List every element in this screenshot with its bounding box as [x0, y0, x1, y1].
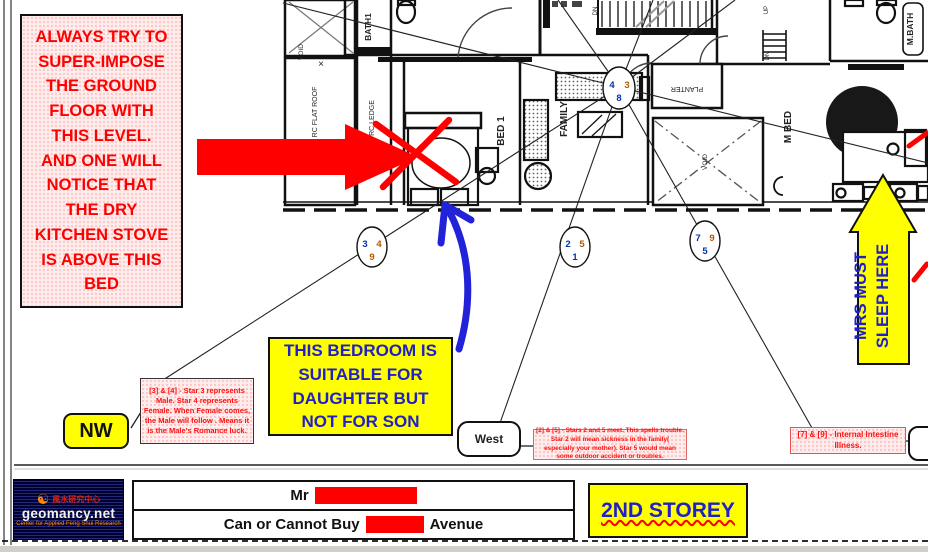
window-bottom-strip: [0, 546, 928, 552]
annotation-star-7-9-text: [7] & [9] - Internal Intestine Illness.: [793, 430, 903, 451]
star-num: 3: [624, 80, 629, 91]
client-box: Mr Can or Cannot Buy Avenue: [132, 480, 575, 540]
room-label-family: FAMILY: [559, 101, 570, 137]
stairs-dn-label-2: DN: [765, 52, 771, 61]
mrs-sleep-arrow: MRS MUST SLEEP HERE: [850, 175, 916, 364]
room-label-bath1: BATH1: [363, 13, 373, 41]
page-margin-lines: [4, 0, 11, 545]
star-circle-center: 4 3 8: [603, 67, 635, 109]
annotation-star-2-5-text: [2] & [5] - Stars 2 and 5 meet. This spe…: [535, 427, 685, 463]
star-num: 3: [362, 239, 367, 250]
room-label-bed1: BED 1: [496, 116, 507, 146]
storey-box: 2ND STOREY: [588, 483, 748, 538]
logo-tagline: Center for Applied Feng Shui Research: [16, 521, 120, 527]
star-circle-se: 7 9 5: [690, 221, 720, 261]
stairs-up-label: UP: [764, 6, 770, 14]
client-address-suffix: Avenue: [430, 516, 484, 533]
compass-west-label: West: [457, 421, 521, 457]
star-num: 9: [369, 252, 374, 263]
yin-yang-icon: ☯: [37, 492, 50, 506]
star-circle-nw: 3 4 9: [357, 227, 387, 267]
logo-brand-text: geomancy.net: [22, 506, 115, 521]
annotation-star-3-4: [3] & [4] - Star 3 represents Male. Star…: [140, 378, 254, 444]
room-label-rc-flat-roof: RC FLAT ROOF: [312, 87, 319, 138]
note-text: ALWAYS TRY TO SUPER-IMPOSE THE GROUND FL…: [32, 25, 171, 297]
void-x-mark: ×: [318, 59, 324, 70]
logo-chinese-text: 風水研究中心: [52, 494, 100, 505]
star-num: 5: [702, 246, 708, 257]
compass-nw-label: NW: [63, 413, 129, 449]
client-address-prefix: Can or Cannot Buy: [224, 516, 360, 533]
star-num: 4: [609, 80, 615, 91]
room-label-void-center: VOID: [702, 154, 709, 170]
annotation-star-3-4-text: [3] & [4] - Star 3 represents Male. Star…: [143, 386, 251, 437]
redaction-block: [315, 487, 417, 504]
storey-label: 2ND STOREY: [601, 499, 735, 523]
star-num: 8: [616, 93, 621, 104]
mrs-arrow-line1: MRS MUST: [852, 252, 870, 340]
note-box: ALWAYS TRY TO SUPER-IMPOSE THE GROUND FL…: [20, 14, 183, 308]
footer-logo: ☯ 風水研究中心 geomancy.net Center for Applied…: [13, 479, 124, 540]
star-num: 1: [572, 252, 578, 263]
client-address-row: Can or Cannot Buy Avenue: [134, 511, 573, 538]
client-name-row: Mr: [134, 482, 573, 511]
room-label-planter: PLANTER: [671, 85, 703, 92]
room-label-void-top: VOID: [298, 44, 305, 60]
room-label-m-bath: M.BATH: [905, 13, 915, 45]
annotation-star-2-5: [2] & [5] - Stars 2 and 5 meet. This spe…: [533, 429, 687, 460]
client-salutation: Mr: [290, 487, 308, 504]
direction-box-partial: [908, 426, 928, 461]
star-num: 2: [565, 239, 570, 250]
blue-curved-arrow: [441, 205, 471, 349]
star-circle-west: 2 5 1: [560, 227, 590, 267]
room-label-m-bed: M BED: [783, 111, 794, 143]
bedroom-note-box: THIS BEDROOM IS SUITABLE FOR DAUGHTER BU…: [268, 337, 453, 436]
stairs-dn-label: DN: [593, 7, 599, 16]
redaction-block: [366, 516, 424, 533]
feng-shui-floorplan-page: { "title_note": { "text": "ALWAYS TRY TO…: [0, 0, 928, 552]
mrs-arrow-line2: SLEEP HERE: [874, 244, 892, 348]
star-num: 5: [579, 239, 585, 250]
bedroom-note-text: THIS BEDROOM IS SUITABLE FOR DAUGHTER BU…: [276, 339, 445, 434]
star-num: 7: [695, 233, 700, 244]
room-label-rc-ledge: RC LEDGE: [369, 100, 376, 136]
annotation-star-7-9: [7] & [9] - Internal Intestine Illness.: [790, 427, 906, 454]
star-num: 4: [376, 239, 382, 250]
star-num: 9: [709, 233, 714, 244]
